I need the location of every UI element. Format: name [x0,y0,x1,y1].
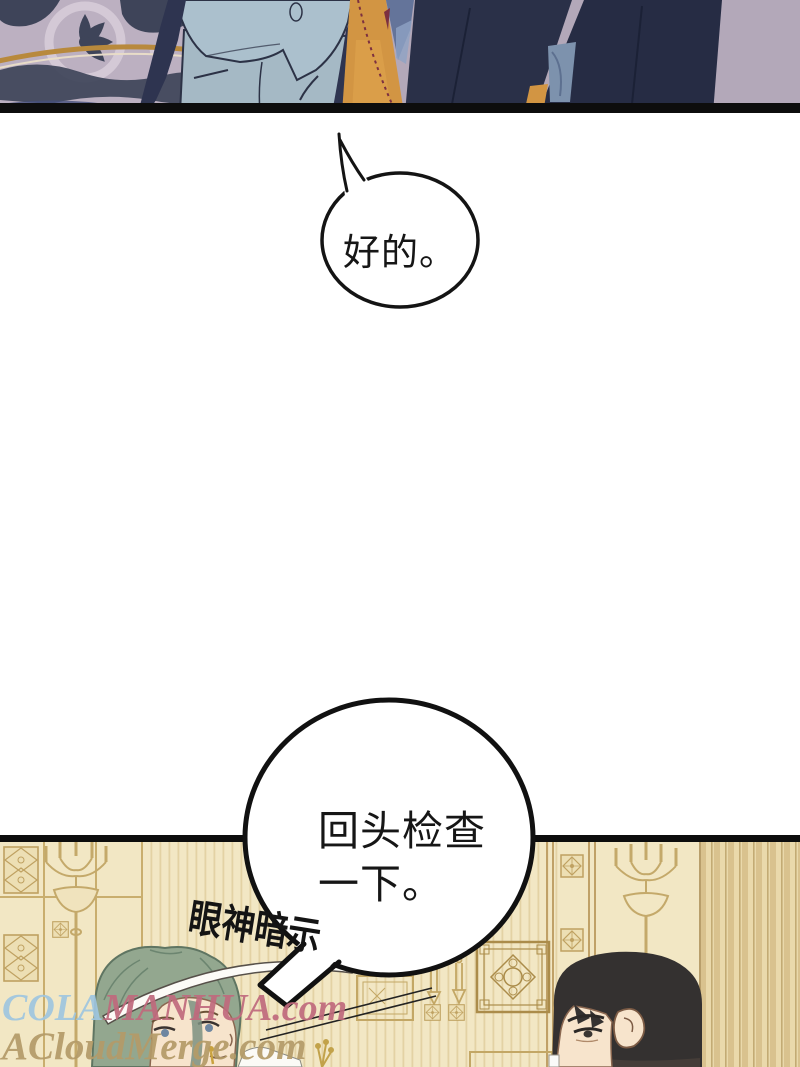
wall-ornament [561,929,583,951]
watermark-acloudmerge: ACloudMerge.com [2,1024,306,1067]
wall-ornament [561,855,583,877]
watermark-manhua-part: MANHUA.com [103,987,347,1029]
watermark-cola-part: COLA [2,987,103,1029]
check-bubble-text: 回头检查 一下。 [318,805,518,911]
wall-ornament [4,847,38,893]
speech-bubble-ok [322,133,478,307]
check-bubble-line2: 一下。 [318,858,518,911]
ear [614,1009,644,1048]
wall-ornament [4,935,38,981]
ok-bubble-text: 好的。 [322,222,478,276]
check-bubble-line1: 回头检查 [318,805,518,858]
wall-stripes-right [700,842,800,1067]
comic-page: 好的。 回头检查 一下。 眼神暗示 COLAMANHUA.com ACloudM… [0,0,800,1067]
wall-ornament [449,1005,465,1021]
standing-figure-dark-legs [405,0,722,113]
panel-top-border [0,103,800,113]
panel-top [0,0,800,113]
bubble-tail [339,134,347,191]
panel-top-art [0,0,800,113]
dark-haired-man [549,952,702,1067]
wall-ornament [53,922,69,938]
collar [549,1055,559,1067]
wall-ornament [425,1005,441,1021]
